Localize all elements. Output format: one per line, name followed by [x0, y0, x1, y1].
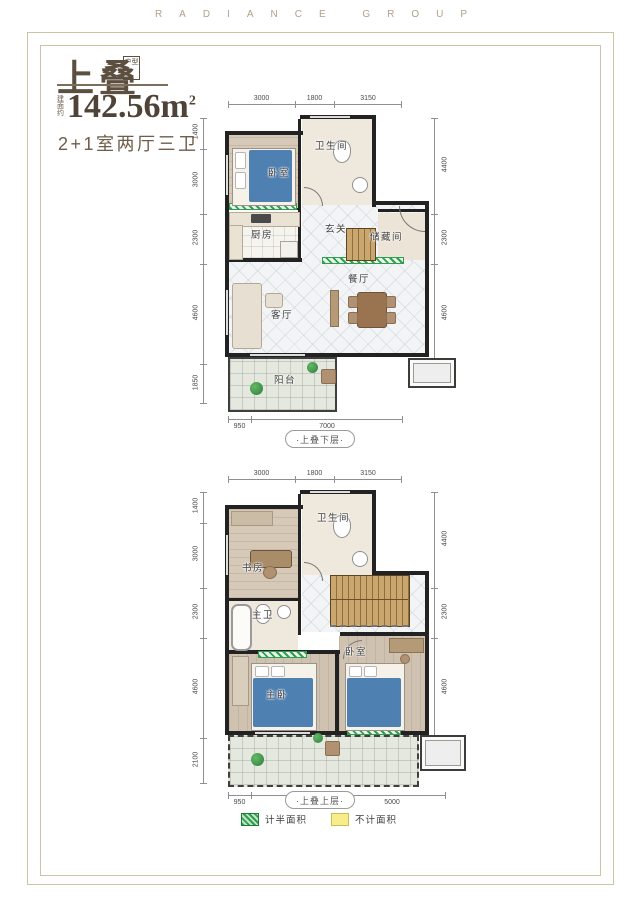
floor-plan-lower: 3000 1800 3150 1400 3000 2300 4600 1850 … [195, 95, 460, 440]
dim-tick [200, 403, 207, 404]
sink-icon [277, 605, 291, 619]
dim-label: 3000 [228, 95, 295, 103]
window [310, 116, 350, 118]
wall [425, 201, 429, 357]
dim-tick [251, 792, 252, 799]
legend-label: 计半面积 [265, 812, 307, 826]
wall [228, 598, 300, 601]
stairs-divider [330, 599, 408, 600]
title-tag: 户型 [123, 56, 140, 80]
wall [425, 571, 429, 735]
dim-label: 4400 [442, 151, 449, 179]
dim-label: 4400 [442, 525, 449, 553]
room-label-living: 客厅 [271, 307, 293, 321]
dim-tick [200, 783, 207, 784]
dim-label: 950 [228, 799, 251, 807]
sink-icon [352, 177, 368, 193]
kitchen-counter [229, 225, 243, 260]
dim-tick [200, 738, 207, 739]
dim-line [203, 492, 204, 784]
dim-label: 2100 [193, 746, 200, 774]
fridge-icon [280, 241, 298, 258]
stairs-railing [330, 625, 408, 627]
wall [298, 494, 301, 635]
tv-stand [330, 290, 339, 327]
wall [372, 115, 376, 207]
dim-tick [228, 416, 229, 423]
dim-tick [200, 523, 207, 524]
window [226, 535, 228, 575]
dim-label: 4600 [193, 299, 200, 327]
terrace-chair [325, 741, 340, 756]
chair [348, 296, 358, 308]
plant-icon [307, 362, 318, 373]
dim-label: 1850 [193, 369, 200, 397]
area-number: 142.56 [67, 88, 161, 125]
dim-label: 4600 [193, 673, 200, 701]
floor-caption-upper: ·上叠上层· [285, 791, 355, 809]
bookshelf [231, 511, 273, 526]
dim-label: 1800 [295, 95, 334, 103]
room-label-storage: 储藏间 [370, 229, 403, 243]
window [310, 491, 350, 493]
room-label-dining: 餐厅 [348, 271, 370, 285]
balcony-door [250, 354, 305, 356]
dim-tick [431, 264, 438, 265]
dim-label: 3000 [193, 166, 200, 194]
pillow [255, 666, 269, 677]
pillow [364, 666, 377, 677]
pillow [349, 666, 362, 677]
dim-tick [200, 638, 207, 639]
dim-label: 4600 [442, 673, 449, 701]
dim-label: 3150 [334, 95, 402, 103]
dim-tick [228, 792, 229, 799]
bed-blanket [253, 678, 313, 727]
half-area-swatch-icon [241, 813, 259, 826]
pillow [235, 152, 246, 169]
floor-caption-lower: ·上叠下层· [285, 430, 355, 448]
dim-line [434, 118, 435, 364]
sofa [232, 283, 262, 349]
dim-tick [200, 364, 207, 365]
dim-tick [200, 492, 207, 493]
wall [376, 201, 429, 205]
window [226, 155, 228, 195]
half-area-hatch [258, 651, 307, 658]
room-label-balcony: 阳台 [274, 372, 296, 386]
area-value: 142.56m2 [67, 88, 196, 126]
room-label-kitchen: 厨房 [251, 227, 273, 241]
legend: 计半面积 不计面积 [241, 812, 397, 826]
room-label-master-bath: 主卫 [252, 607, 274, 621]
wall [225, 505, 303, 509]
dim-tick [431, 492, 438, 493]
dim-label: 3000 [193, 540, 200, 568]
dim-tick [431, 588, 438, 589]
area-prefix: 建面约 [57, 96, 66, 117]
dim-tick [445, 792, 446, 799]
dim-label: 3000 [228, 470, 295, 478]
dresser [389, 638, 424, 653]
balcony-chair [321, 369, 336, 384]
legend-item-excluded-area: 不计面积 [331, 812, 397, 826]
legend-item-half-area: 计半面积 [241, 812, 307, 826]
dim-label: 950 [228, 423, 251, 431]
dim-line [228, 104, 402, 105]
room-label-bathroom: 卫生间 [315, 138, 348, 152]
dim-label: 1400 [193, 492, 200, 520]
layout-spec: 2+1室两厅三卫 [58, 130, 199, 156]
dim-label: 2300 [193, 598, 200, 626]
wall [335, 650, 339, 735]
ottoman [265, 293, 283, 308]
dim-tick [431, 638, 438, 639]
room-label-study: 书房 [242, 560, 264, 574]
dining-table [357, 292, 387, 328]
dim-tick [431, 118, 438, 119]
dim-tick [200, 118, 207, 119]
dim-label: 4600 [442, 299, 449, 327]
dim-tick [431, 214, 438, 215]
floor-plan-upper: 3000 1800 3150 1400 3000 2300 4600 2100 … [195, 465, 465, 810]
title-divider [57, 84, 168, 86]
dim-line [203, 118, 204, 404]
dim-label: 1800 [295, 470, 334, 478]
window [226, 290, 228, 335]
room-label-foyer: 玄关 [325, 221, 347, 235]
wall [372, 490, 376, 580]
chair [386, 312, 396, 324]
dim-line [228, 419, 403, 420]
stool [400, 654, 410, 664]
plant-icon [313, 733, 323, 743]
window [255, 732, 310, 734]
dim-label: 2300 [193, 224, 200, 252]
room-label-bedroom: 卧室 [268, 165, 290, 179]
dim-label: 2300 [442, 598, 449, 626]
dim-label: 3150 [334, 470, 402, 478]
pillow [235, 172, 246, 189]
pillow [271, 666, 285, 677]
dim-tick [200, 149, 207, 150]
dim-tick [402, 416, 403, 423]
wall [340, 632, 429, 636]
dim-tick [251, 416, 252, 423]
desk-chair [263, 566, 277, 579]
brand-logotype: RADIANCE GROUP [0, 9, 639, 20]
ac-platform [408, 358, 456, 388]
bathtub-icon [231, 604, 252, 651]
wall [225, 131, 303, 135]
room-label-bathroom: 卫生间 [317, 510, 350, 524]
ac-platform [420, 735, 466, 771]
bed-blanket [347, 678, 401, 727]
dim-label: 2300 [442, 224, 449, 252]
dim-tick [200, 264, 207, 265]
chair [348, 312, 358, 324]
sink-icon [352, 551, 368, 567]
dim-tick [200, 588, 207, 589]
chair [386, 296, 396, 308]
area-unit: m [161, 88, 189, 125]
stairs [330, 575, 410, 627]
plant-icon [250, 382, 263, 395]
dim-line [434, 492, 435, 738]
room-label-master-bedroom: 主卧 [266, 687, 288, 701]
plant-icon [251, 753, 264, 766]
excluded-area-swatch-icon [331, 813, 349, 826]
stove-icon [251, 214, 271, 223]
legend-label: 不计面积 [355, 812, 397, 826]
wardrobe [232, 656, 249, 706]
dim-label: 1400 [193, 118, 200, 146]
dim-line [228, 479, 402, 480]
room-label-bedroom: 卧室 [345, 644, 367, 658]
wall [298, 119, 301, 262]
dim-tick [200, 214, 207, 215]
